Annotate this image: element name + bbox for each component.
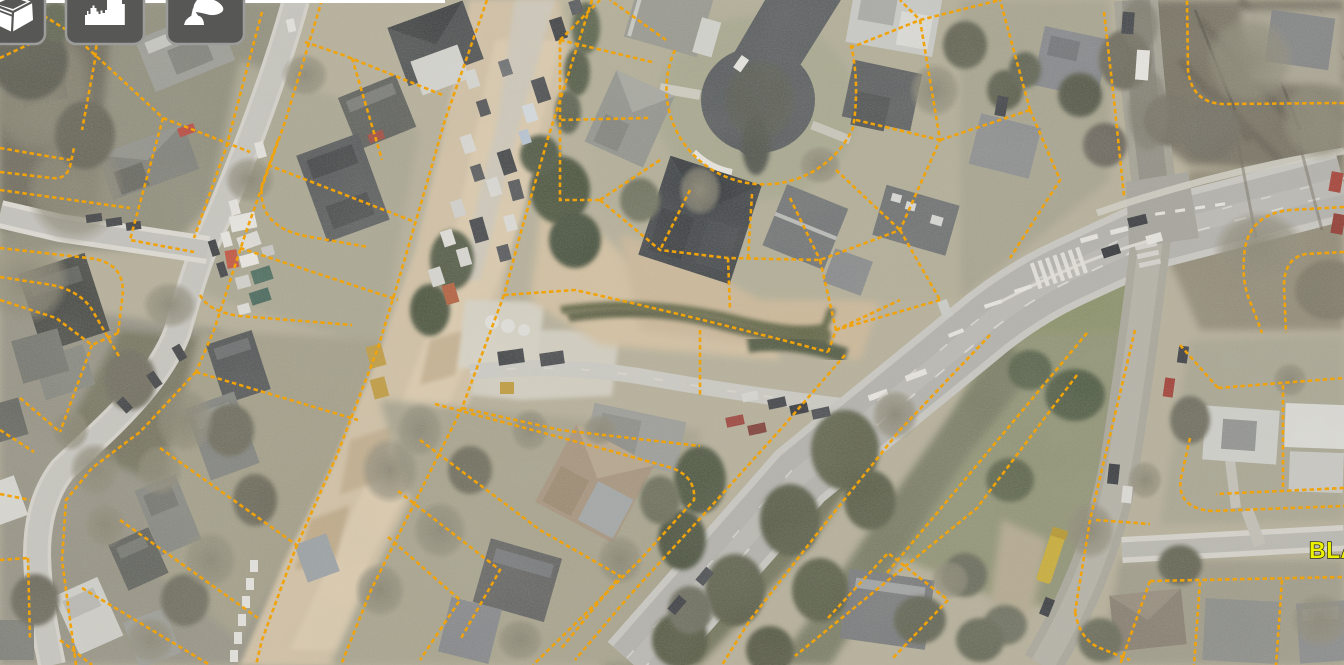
svg-text:BLA: BLA (1309, 537, 1344, 563)
